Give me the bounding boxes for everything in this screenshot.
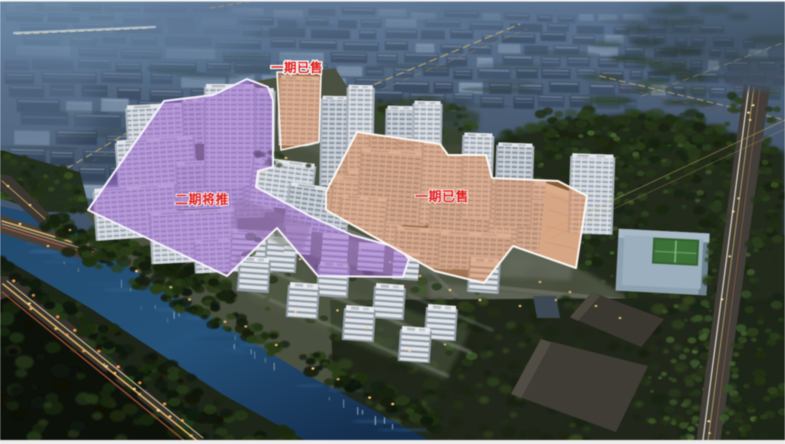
svg-text:二期将推: 二期将推 bbox=[175, 192, 229, 207]
svg-text:一期已售: 一期已售 bbox=[415, 189, 469, 204]
svg-text:一期已售: 一期已售 bbox=[271, 60, 323, 75]
